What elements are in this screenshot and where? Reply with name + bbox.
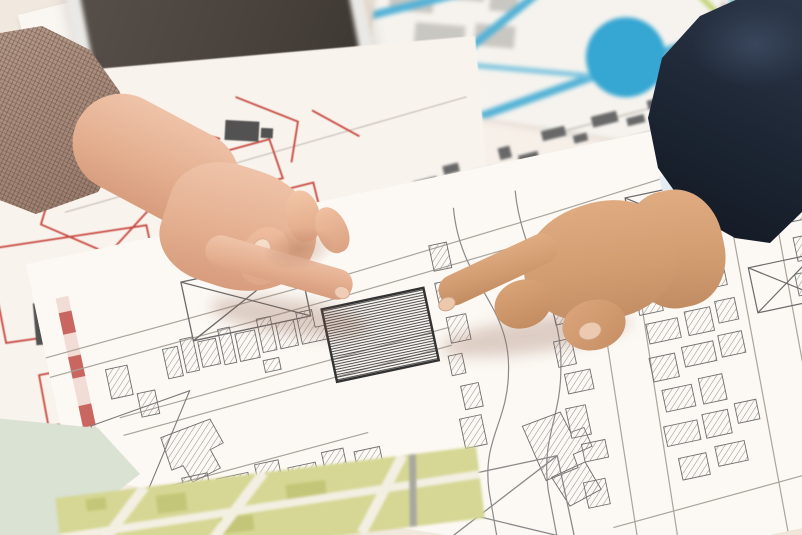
photo-scene: Close-up of two people's hands over cada… <box>0 0 802 535</box>
crossed-parcel-3 <box>748 254 802 313</box>
